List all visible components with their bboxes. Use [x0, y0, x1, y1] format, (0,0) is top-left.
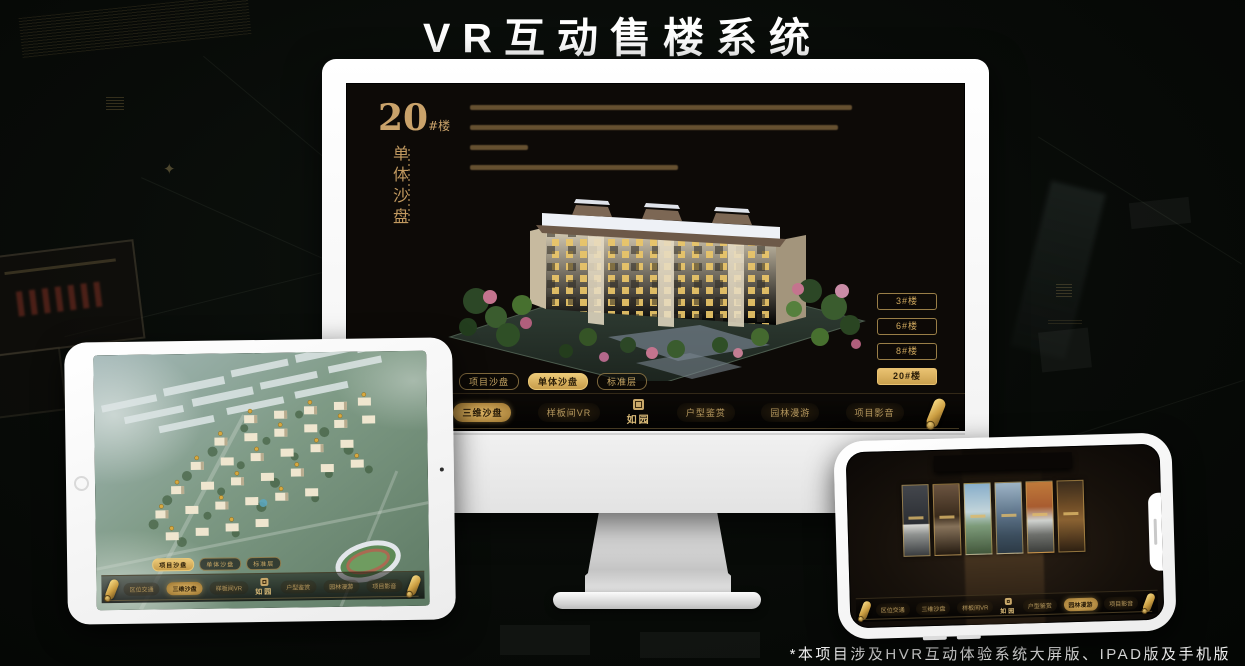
tab-standard-floor[interactable]: 标准层: [597, 373, 647, 390]
nav-item-model-room-vr[interactable]: 样板间VR: [538, 403, 601, 422]
floor-button-8[interactable]: 8#楼: [877, 343, 937, 360]
speaker-slit: [1154, 519, 1158, 545]
nav-item-model-room-vr[interactable]: 样板间VR: [210, 581, 249, 595]
building-number-suffix: #楼: [428, 119, 450, 133]
gallery-panel-facade[interactable]: [994, 482, 1023, 555]
gallery-panel-autumn[interactable]: [1025, 481, 1054, 554]
project-logo: 如园: [627, 399, 651, 426]
tab-building-sandbox[interactable]: 单体沙盘: [199, 557, 241, 571]
plaque-text-line: [4, 259, 116, 276]
background-plaque: [0, 239, 146, 357]
building-number-heading: 20#楼: [378, 97, 450, 139]
pano-gallery: [902, 480, 1086, 557]
scene: ✦ VR互动售楼系统 *本项目涉及HVR互动体验系统大屏版、IPAD版及手机版 …: [0, 0, 1245, 666]
scroll-icon[interactable]: [104, 578, 120, 601]
nav-item-garden-tour[interactable]: 园林漫游: [1063, 597, 1097, 611]
panel-label: [1032, 513, 1047, 516]
compass-star: ✦: [163, 160, 176, 178]
gallery-panel-bar[interactable]: [1056, 480, 1085, 553]
background-building: [1038, 327, 1092, 372]
nav-item-project-media[interactable]: 项目影音: [846, 403, 904, 422]
home-button[interactable]: [74, 476, 89, 491]
panel-label: [970, 514, 985, 517]
footnote: *本项目涉及HVR互动体验系统大屏版、IPAD版及手机版: [790, 643, 1231, 664]
background-building: [500, 625, 590, 655]
gallery-panel-livingroom[interactable]: [933, 483, 962, 556]
seal-icon: [260, 578, 268, 586]
monitor-stand-base: [553, 592, 761, 609]
sandbox-tab-row: 项目沙盘 单体沙盘 标准层: [152, 557, 281, 572]
background-plaque: [0, 347, 68, 422]
volume-button: [923, 636, 947, 641]
page-title: VR互动售楼系统: [0, 4, 1245, 64]
ipad-device: 项目沙盘 单体沙盘 标准层 区位交通 三维沙盘 样板间VR 如园 户型鉴赏 园林…: [64, 337, 456, 624]
background-building: [640, 632, 760, 658]
heading-vertical-label: 单体沙盘: [386, 145, 410, 229]
logo-text: 如园: [1000, 606, 1016, 615]
panel-label: [939, 515, 954, 518]
building-3d-render[interactable]: [438, 141, 870, 381]
nav-item-location[interactable]: 区位交通: [123, 582, 159, 596]
phone-nav-bar: 区位交通 三维沙盘 样板间VR 如园 户型鉴赏 园林漫游 项目影音: [856, 590, 1159, 622]
floor-button-3[interactable]: 3#楼: [877, 293, 937, 310]
scroll-icon[interactable]: [858, 600, 872, 621]
tab-building-sandbox[interactable]: 单体沙盘: [528, 373, 588, 390]
phone-notch: [1148, 493, 1165, 571]
nav-item-model-room-vr[interactable]: 样板间VR: [957, 600, 994, 614]
phone-screen: 区位交通 三维沙盘 样板间VR 如园 户型鉴赏 园林漫游 项目影音: [846, 444, 1165, 629]
logo-text: 如园: [627, 411, 651, 426]
nav-item-sandbox-3d[interactable]: 三维沙盘: [916, 602, 950, 616]
background-map-icon: [106, 96, 124, 110]
tab-project-sandbox[interactable]: 项目沙盘: [459, 373, 519, 390]
archway-lintel: [934, 452, 1073, 472]
ipad-nav-bar: 区位交通 三维沙盘 样板间VR 如园 户型鉴赏 园林漫游 项目影音: [101, 571, 424, 604]
nav-item-floorplan[interactable]: 户型鉴赏: [280, 580, 316, 594]
scroll-icon[interactable]: [1142, 592, 1156, 613]
panel-label: [1063, 512, 1078, 515]
project-logo: 如园: [1000, 598, 1016, 615]
monitor-stand-neck: [585, 508, 731, 596]
nav-item-garden-tour[interactable]: 园林漫游: [323, 580, 359, 594]
nav-item-project-media[interactable]: 项目影音: [1104, 596, 1138, 610]
heading-english-vertical-text: [408, 149, 410, 221]
nav-item-floorplan[interactable]: 户型鉴赏: [677, 403, 735, 422]
description-text-line: [470, 125, 838, 130]
nav-item-sandbox-3d[interactable]: 三维沙盘: [167, 582, 203, 596]
volume-button: [957, 635, 981, 640]
floor-button-20[interactable]: 20#楼: [877, 368, 937, 385]
logo-text: 如园: [255, 587, 273, 597]
seal-icon: [1004, 598, 1011, 605]
panel-label: [1001, 513, 1016, 516]
scroll-icon[interactable]: [925, 396, 947, 428]
tab-standard-floor[interactable]: 标准层: [246, 557, 281, 570]
nav-item-sandbox-3d[interactable]: 三维沙盘: [453, 403, 511, 422]
gallery-panel-sketch[interactable]: [902, 484, 931, 557]
nav-item-project-media[interactable]: 项目影音: [366, 579, 402, 593]
nav-item-location[interactable]: 区位交通: [876, 603, 910, 617]
sandbox-tab-row: 项目沙盘 单体沙盘 标准层: [459, 373, 647, 390]
background-building: [1129, 197, 1191, 229]
floor-button-group: 3#楼 6#楼 8#楼 20#楼: [877, 293, 937, 385]
seal-icon: [633, 399, 644, 410]
gallery-panel-garden[interactable]: [964, 482, 993, 555]
nav-item-floorplan[interactable]: 户型鉴赏: [1023, 599, 1057, 613]
plaque-red-seal-text: [16, 282, 107, 318]
floor-button-6[interactable]: 6#楼: [877, 318, 937, 335]
nav-item-garden-tour[interactable]: 园林漫游: [761, 403, 819, 422]
camera-icon: [440, 467, 444, 471]
ipad-screen: 项目沙盘 单体沙盘 标准层 区位交通 三维沙盘 样板间VR 如园 户型鉴赏 园林…: [93, 351, 430, 611]
project-logo: 如园: [255, 578, 273, 597]
phone-device: 区位交通 三维沙盘 样板间VR 如园 户型鉴赏 园林漫游 项目影音: [833, 432, 1176, 639]
scroll-icon[interactable]: [406, 574, 422, 597]
description-text-line: [470, 105, 852, 110]
tab-project-sandbox[interactable]: 项目沙盘: [152, 558, 194, 572]
panel-label: [908, 516, 923, 519]
